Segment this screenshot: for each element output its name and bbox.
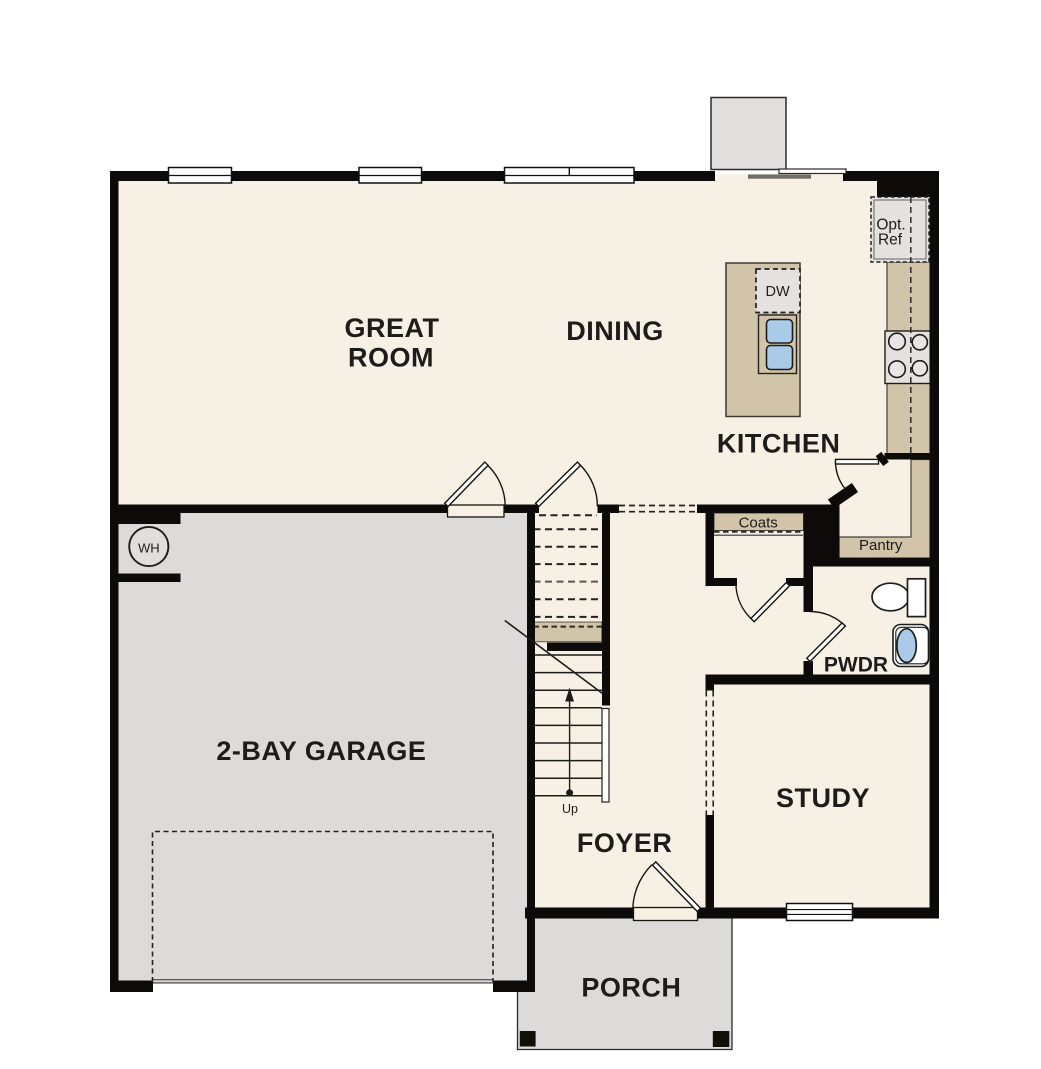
svg-text:ROOM: ROOM [348,343,434,373]
svg-text:2-BAY GARAGE: 2-BAY GARAGE [216,736,426,766]
svg-text:PORCH: PORCH [581,973,681,1003]
svg-text:Ref: Ref [878,231,903,248]
svg-text:KITCHEN: KITCHEN [717,429,841,459]
svg-text:DINING: DINING [566,316,664,346]
svg-text:PWDR: PWDR [824,654,888,677]
svg-text:Coats: Coats [739,514,778,531]
svg-text:Pantry: Pantry [859,537,903,554]
svg-text:GREAT: GREAT [345,313,440,343]
svg-text:DW: DW [766,284,790,300]
svg-text:STUDY: STUDY [776,783,870,813]
svg-text:FOYER: FOYER [577,828,673,858]
svg-text:WH: WH [138,541,160,556]
svg-text:Up: Up [562,802,578,816]
